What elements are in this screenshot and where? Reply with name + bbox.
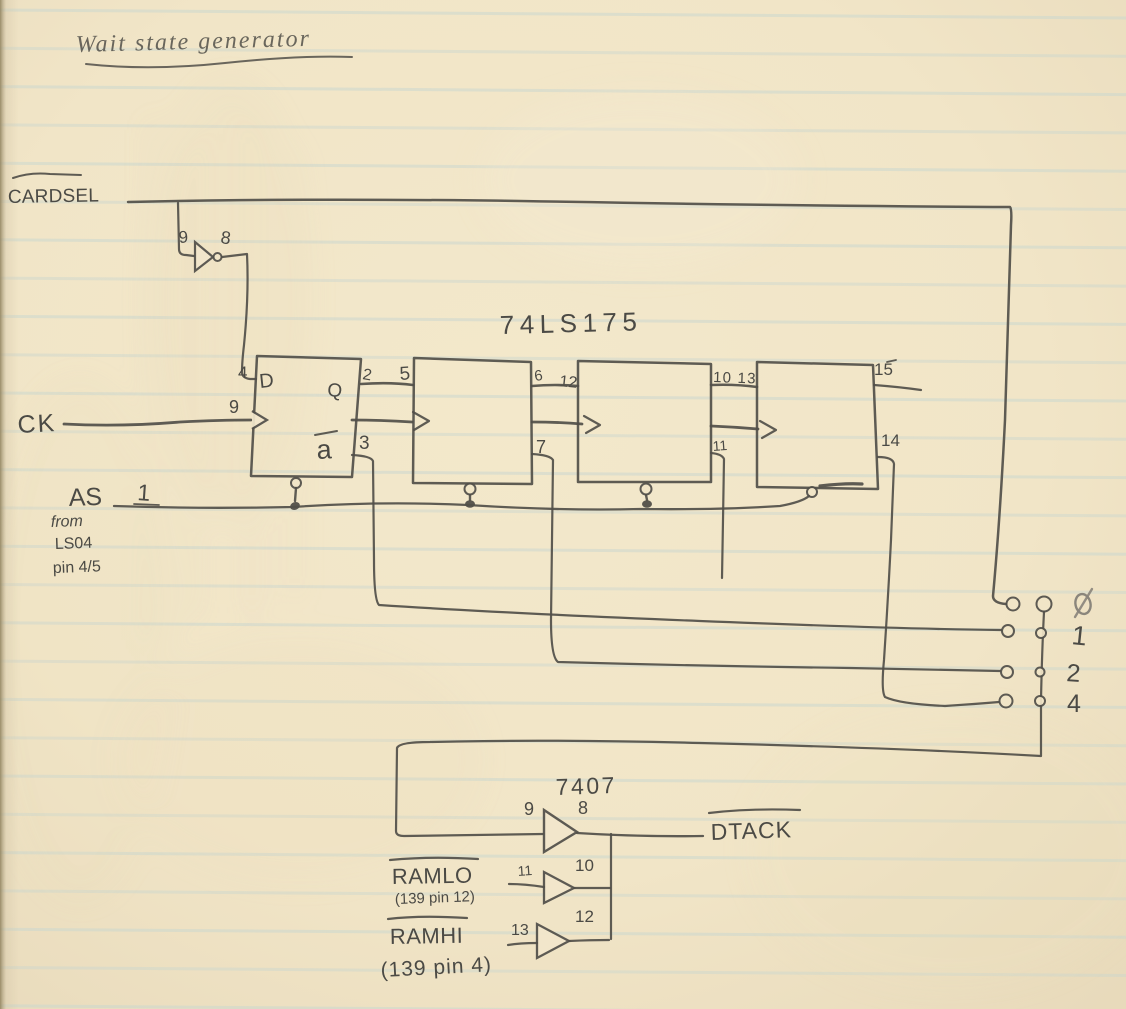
svg-text:4: 4 <box>1067 690 1081 718</box>
svg-text:pin 4/5: pin 4/5 <box>53 558 102 577</box>
svg-text:11: 11 <box>712 437 728 454</box>
svg-text:(139 pin 12): (139 pin 12) <box>395 888 476 908</box>
svg-text:11: 11 <box>517 862 533 879</box>
svg-text:1: 1 <box>1070 620 1088 651</box>
svg-text:RAMLO: RAMLO <box>392 863 473 889</box>
svg-text:10: 10 <box>575 856 594 875</box>
svg-text:AS: AS <box>68 483 102 512</box>
svg-text:from: from <box>51 513 84 531</box>
svg-text:Q: Q <box>327 380 343 402</box>
svg-text:a: a <box>316 434 334 465</box>
svg-text:CK: CK <box>17 409 57 439</box>
svg-text:13: 13 <box>511 922 529 939</box>
svg-text:5: 5 <box>399 363 411 385</box>
svg-text:74LS175: 74LS175 <box>499 306 642 340</box>
svg-text:12: 12 <box>559 373 579 392</box>
svg-text:15: 15 <box>874 360 893 379</box>
svg-text:3: 3 <box>359 433 370 454</box>
svg-text:LS04: LS04 <box>55 535 93 553</box>
svg-text:9: 9 <box>524 799 534 819</box>
svg-text:14: 14 <box>881 431 900 450</box>
svg-text:DTACK: DTACK <box>710 816 792 845</box>
svg-text:12: 12 <box>575 907 594 926</box>
svg-text:7407: 7407 <box>555 772 617 800</box>
svg-text:CARDSEL: CARDSEL <box>8 185 100 208</box>
svg-text:4: 4 <box>238 363 247 382</box>
svg-text:2: 2 <box>1066 659 1082 688</box>
svg-text:D: D <box>258 370 275 393</box>
svg-text:9: 9 <box>178 227 189 247</box>
svg-text:1: 1 <box>137 479 152 506</box>
svg-text:RAMHI: RAMHI <box>390 923 464 949</box>
svg-text:9: 9 <box>229 397 239 417</box>
svg-text:8: 8 <box>578 798 588 818</box>
